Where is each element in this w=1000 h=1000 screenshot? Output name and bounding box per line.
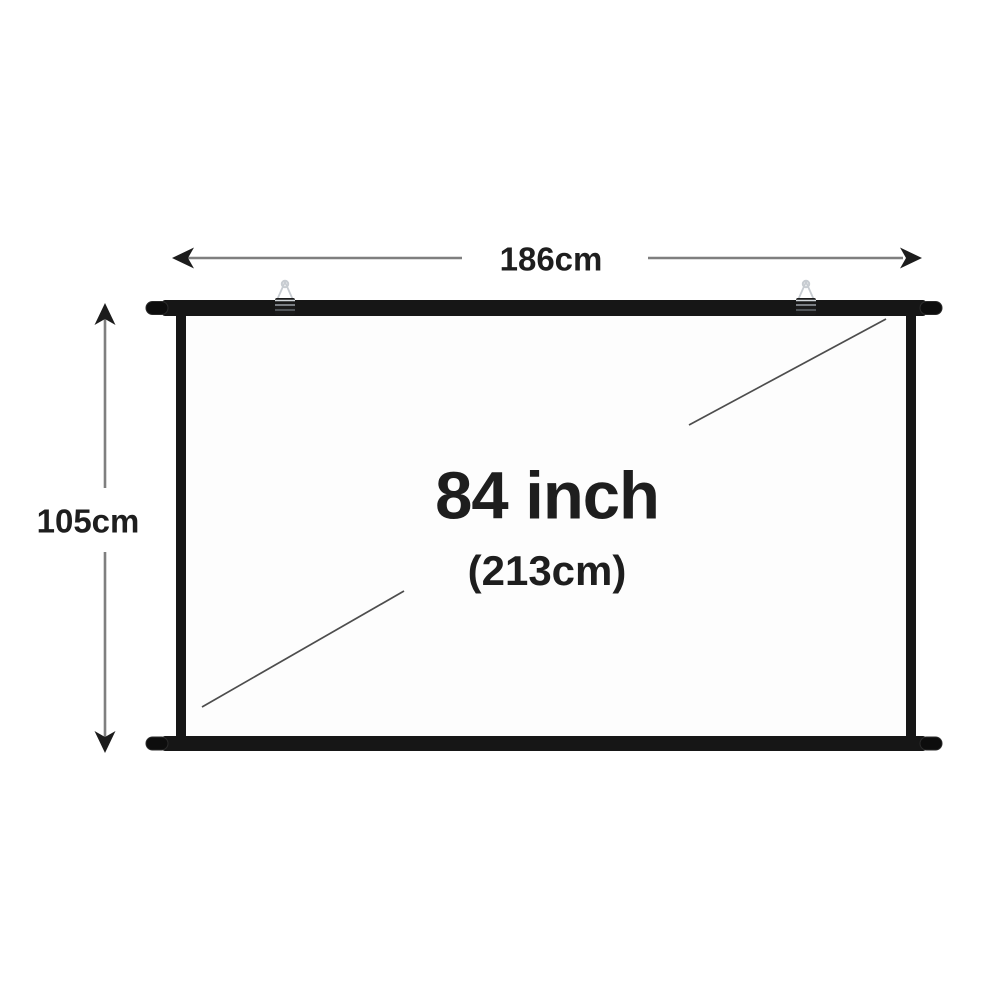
width-arrowhead-right <box>900 248 922 269</box>
width-dimension-label: 186cm <box>500 243 603 276</box>
hook-loop <box>798 282 814 300</box>
hanging-hook-icon <box>796 281 816 315</box>
frame-left-bar <box>176 310 186 740</box>
end-cap-bottom-right <box>920 737 942 750</box>
hook-loop <box>277 282 293 300</box>
end-cap-bottom-left <box>146 737 168 750</box>
end-cap-top-left <box>146 302 168 315</box>
diagonal-size-inch-label: 84 inch <box>435 463 659 530</box>
frame-bottom-bar <box>162 736 926 751</box>
height-dimension-label: 105cm <box>37 505 140 538</box>
diagonal-size-cm-label: (213cm) <box>468 550 627 592</box>
product-diagram-canvas: 186cm 105cm 84 inch (213cm) <box>0 0 1000 1000</box>
hanging-hook-icon <box>275 281 295 315</box>
frame-right-bar <box>906 310 916 740</box>
end-cap-top-right <box>920 302 942 315</box>
